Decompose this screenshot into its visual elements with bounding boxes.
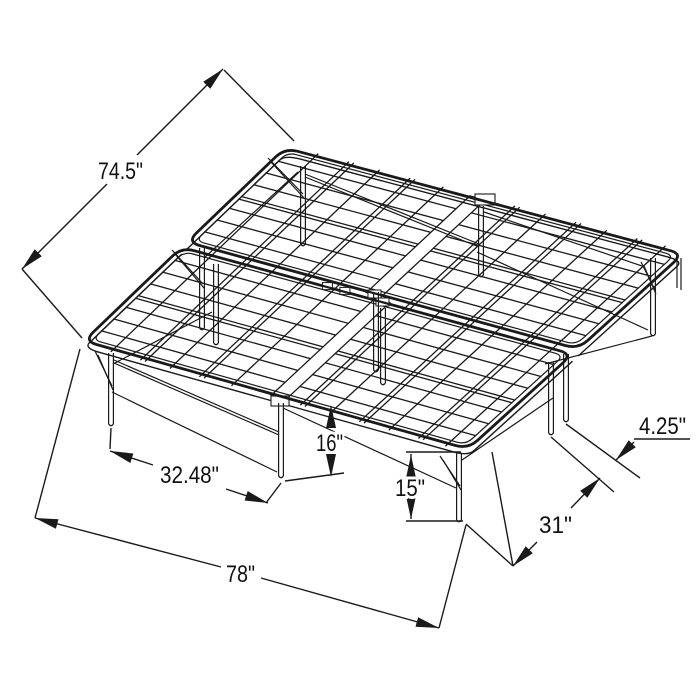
svg-text:78": 78" <box>226 561 255 588</box>
svg-text:31": 31" <box>539 512 572 539</box>
svg-text:4.25": 4.25" <box>639 413 686 440</box>
svg-text:15": 15" <box>395 475 425 502</box>
svg-text:32.48": 32.48" <box>160 462 219 489</box>
svg-text:74.5": 74.5" <box>98 158 143 185</box>
svg-text:16": 16" <box>316 430 343 457</box>
